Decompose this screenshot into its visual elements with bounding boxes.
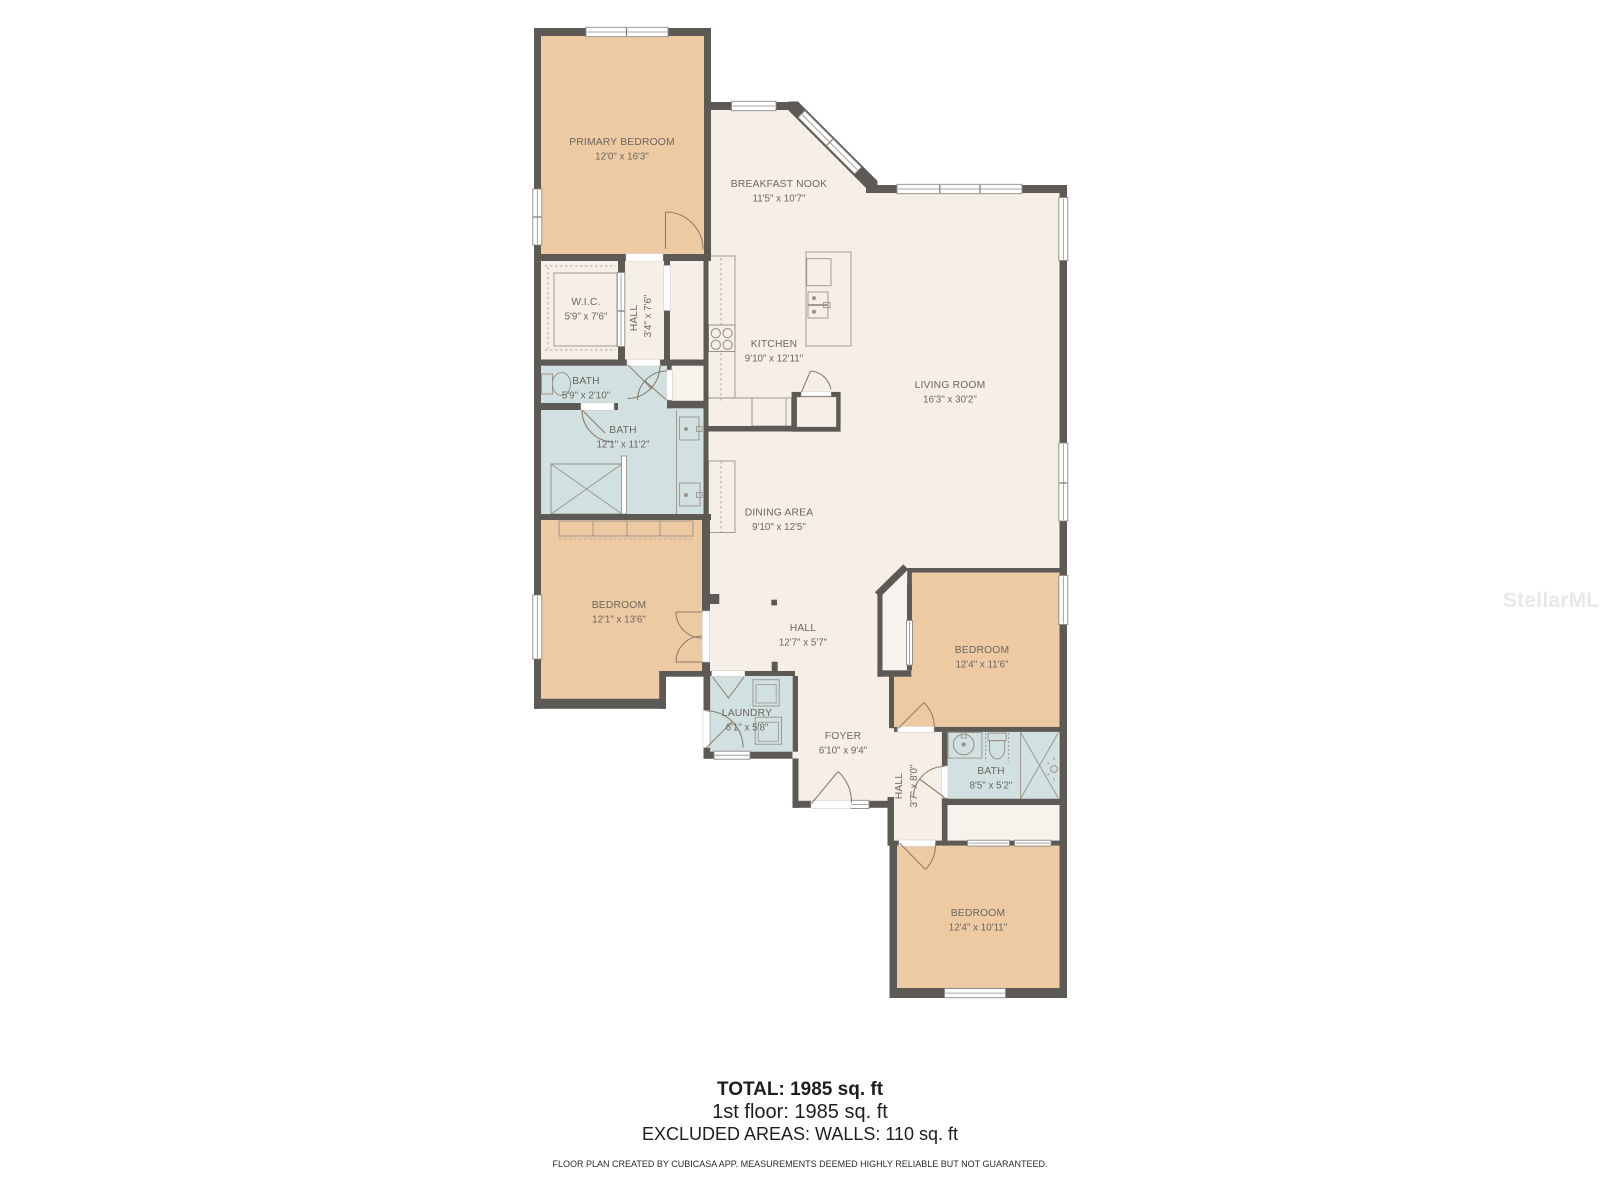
svg-text:BATH: BATH	[609, 425, 637, 436]
svg-text:HALL: HALL	[790, 623, 817, 634]
svg-text:BREAKFAST NOOK: BREAKFAST NOOK	[731, 179, 827, 190]
svg-text:DINING AREA: DINING AREA	[745, 508, 814, 519]
svg-text:EXCLUDED AREAS: WALLS: 110 sq.: EXCLUDED AREAS: WALLS: 110 sq. ft	[642, 1124, 958, 1144]
svg-text:6'10" x 9'4": 6'10" x 9'4"	[819, 746, 868, 757]
svg-text:W.I.C.: W.I.C.	[571, 297, 600, 308]
svg-text:12'0" x 16'3": 12'0" x 16'3"	[595, 152, 649, 163]
svg-text:StellarMLS: StellarMLS	[1503, 589, 1600, 612]
svg-text:FOYER: FOYER	[825, 731, 861, 742]
svg-text:KITCHEN: KITCHEN	[751, 339, 798, 350]
svg-text:BEDROOM: BEDROOM	[592, 600, 647, 611]
svg-text:TOTAL: 1985 sq. ft: TOTAL: 1985 sq. ft	[717, 1079, 884, 1100]
svg-text:LAUNDRY: LAUNDRY	[722, 708, 772, 719]
svg-text:1st floor: 1985 sq. ft: 1st floor: 1985 sq. ft	[712, 1101, 888, 1123]
svg-text:BEDROOM: BEDROOM	[955, 645, 1010, 656]
svg-text:16'3" x 30'2": 16'3" x 30'2"	[923, 395, 977, 406]
svg-text:9'10" x 12'11": 9'10" x 12'11"	[745, 354, 804, 365]
svg-text:LIVING ROOM: LIVING ROOM	[915, 380, 986, 391]
svg-text:FLOOR PLAN CREATED BY CUBICASA: FLOOR PLAN CREATED BY CUBICASA APP. MEAS…	[553, 1159, 1048, 1169]
svg-text:HALL: HALL	[629, 305, 640, 332]
svg-text:6'1" x 5'8": 6'1" x 5'8"	[726, 723, 769, 734]
svg-text:8'5" x 5'2": 8'5" x 5'2"	[970, 781, 1013, 792]
svg-text:11'5" x 10'7": 11'5" x 10'7"	[752, 194, 806, 205]
svg-text:PRIMARY BEDROOM: PRIMARY BEDROOM	[569, 137, 675, 148]
svg-text:12'4" x 10'11": 12'4" x 10'11"	[949, 923, 1008, 934]
svg-text:BATH: BATH	[572, 376, 600, 387]
svg-text:3'4" x 7'6": 3'4" x 7'6"	[643, 294, 654, 337]
svg-text:5'9" x 2'10": 5'9" x 2'10"	[562, 391, 611, 402]
svg-text:12'7" x 5'7": 12'7" x 5'7"	[779, 638, 828, 649]
svg-text:BATH: BATH	[977, 766, 1005, 777]
svg-text:5'9" x 7'6": 5'9" x 7'6"	[565, 312, 608, 323]
svg-text:9'10" x 12'5": 9'10" x 12'5"	[752, 522, 806, 533]
svg-text:12'1" x 13'6": 12'1" x 13'6"	[592, 615, 646, 626]
svg-text:12'1" x 11'2": 12'1" x 11'2"	[596, 440, 650, 451]
svg-text:BEDROOM: BEDROOM	[951, 908, 1006, 919]
svg-text:12'4" x 11'6": 12'4" x 11'6"	[955, 660, 1009, 671]
svg-text:HALL: HALL	[894, 773, 905, 800]
svg-text:3'7" x 8'0": 3'7" x 8'0"	[909, 764, 920, 807]
